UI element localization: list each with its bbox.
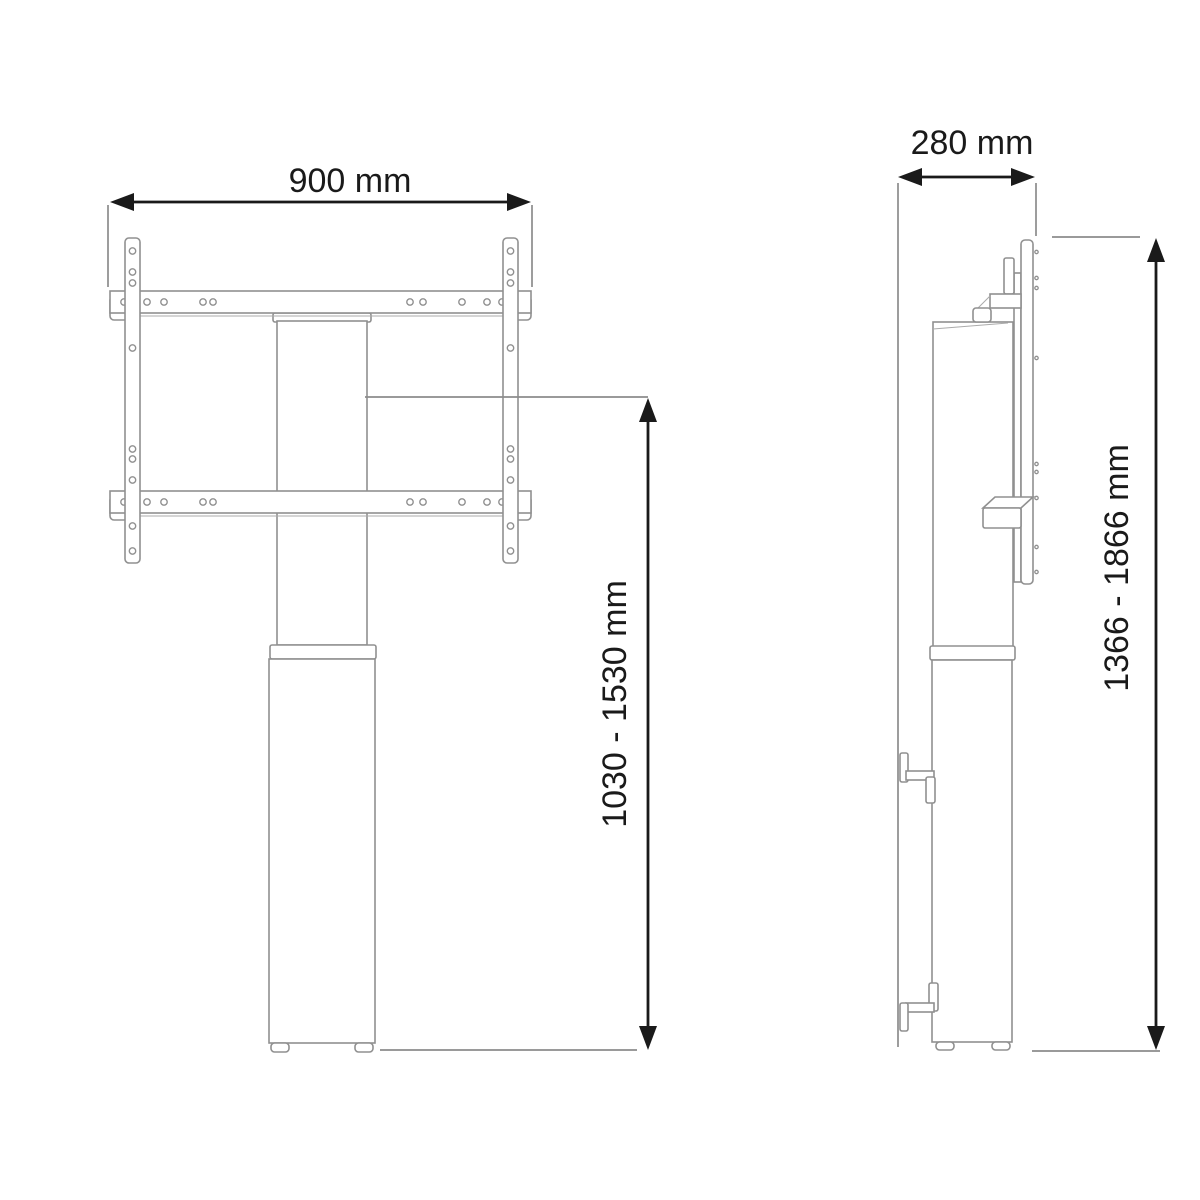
bracket-front-block <box>973 308 991 322</box>
column-foot-right <box>992 1042 1010 1050</box>
side-height-dimension: 1366 - 1866 mm <box>1032 237 1165 1051</box>
front-bottom-crossbar <box>110 491 531 520</box>
front-view: 900 mm 1030 - 1530 mm <box>108 162 657 1052</box>
outer-column <box>269 659 375 1043</box>
bracket-arm <box>990 294 1021 308</box>
wall-plate <box>900 1003 908 1031</box>
side-vesa-rail <box>1021 240 1038 584</box>
tv-stand-technical-diagram: 900 mm 1030 - 1530 mm <box>0 0 1200 1200</box>
arrowhead-left-icon <box>898 168 922 186</box>
side-depth-label: 280 mm <box>911 124 1034 162</box>
front-width-dimension: 900 mm <box>108 162 532 287</box>
arrowhead-up-icon <box>1147 238 1165 262</box>
front-height-label: 1030 - 1530 mm <box>596 580 634 828</box>
rail-body <box>1021 240 1033 584</box>
arrowhead-up-icon <box>639 398 657 422</box>
bracket-arm <box>906 1003 934 1012</box>
bracket-tab <box>1004 258 1014 294</box>
column-housing <box>933 322 1013 652</box>
column-collar <box>270 645 376 659</box>
front-lift-column <box>269 313 376 1052</box>
rail-mounting-holes <box>1035 250 1038 573</box>
inner-column <box>277 321 367 645</box>
side-depth-dimension: 280 mm <box>898 124 1036 236</box>
crossbar-body <box>110 291 531 313</box>
front-width-label: 900 mm <box>289 162 412 200</box>
column-foot-left <box>936 1042 954 1050</box>
diagram-canvas: 900 mm 1030 - 1530 mm <box>0 0 1200 1200</box>
outer-column <box>932 660 1012 1042</box>
bracket-front-face <box>983 508 1021 528</box>
arrowhead-right-icon <box>1011 168 1035 186</box>
side-lift-column <box>930 273 1021 1050</box>
column-collar <box>930 646 1015 660</box>
arrowhead-down-icon <box>1147 1026 1165 1050</box>
side-height-label: 1366 - 1866 mm <box>1098 444 1136 692</box>
front-top-crossbar <box>110 291 531 320</box>
wall-bracket-upper <box>900 753 935 803</box>
column-hook <box>926 777 935 803</box>
front-right-vesa-rail <box>503 238 518 563</box>
arrowhead-right-icon <box>507 193 531 211</box>
rail-channel <box>1014 273 1021 582</box>
front-left-vesa-rail <box>125 238 140 563</box>
arrowhead-left-icon <box>110 193 134 211</box>
crossbar-body <box>110 491 531 513</box>
side-view: 280 mm 1366 - 1866 mm <box>898 124 1165 1051</box>
column-foot-right <box>355 1043 373 1052</box>
column-foot-left <box>271 1043 289 1052</box>
arrowhead-down-icon <box>639 1026 657 1050</box>
